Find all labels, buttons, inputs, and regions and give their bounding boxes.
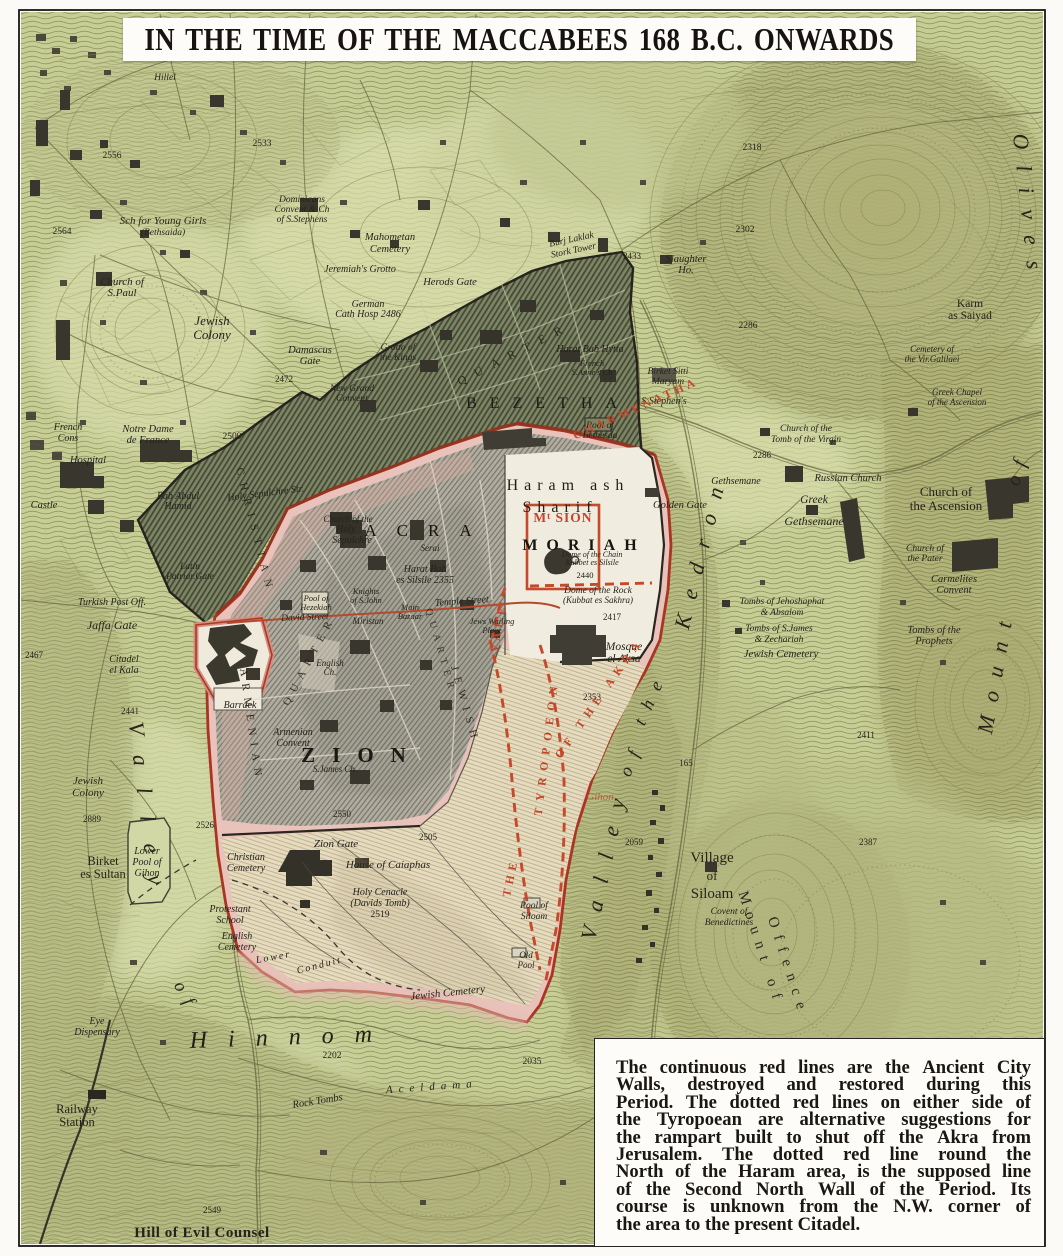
svg-text:BEZETHA: BEZETHA xyxy=(466,395,630,412)
svg-text:165: 165 xyxy=(679,758,693,768)
svg-text:Carmelites: Carmelites xyxy=(931,574,977,585)
svg-text:2286: 2286 xyxy=(739,321,758,331)
svg-text:Sepulchre: Sepulchre xyxy=(332,535,372,546)
svg-text:Citadel: Citadel xyxy=(109,654,139,665)
svg-text:Pool: Pool xyxy=(517,960,535,970)
svg-text:Cemetery of: Cemetery of xyxy=(910,344,955,354)
svg-text:Karm: Karm xyxy=(957,298,983,310)
svg-text:Pool of: Pool of xyxy=(519,900,549,911)
svg-text:S.Paul: S.Paul xyxy=(107,287,136,299)
svg-text:Siloam: Siloam xyxy=(691,886,734,902)
svg-text:Eye: Eye xyxy=(89,1016,106,1027)
svg-text:de France: de France xyxy=(127,435,170,446)
svg-text:Holy Cenacle: Holy Cenacle xyxy=(352,887,408,898)
svg-text:Cath Hosp 2486: Cath Hosp 2486 xyxy=(335,309,401,320)
svg-text:Convent: Convent xyxy=(276,738,310,749)
svg-text:the Pater: the Pater xyxy=(907,554,942,564)
svg-text:Village: Village xyxy=(690,850,734,866)
svg-text:Miristan: Miristan xyxy=(351,616,384,626)
svg-text:David Street: David Street xyxy=(280,612,329,624)
svg-text:(Kubbat es Sakhra): (Kubbat es Sakhra) xyxy=(563,595,633,605)
svg-text:2035: 2035 xyxy=(523,1057,542,1067)
svg-text:Hamid: Hamid xyxy=(163,501,192,512)
svg-text:Dispensary: Dispensary xyxy=(73,1027,120,1038)
svg-text:Damascus: Damascus xyxy=(287,345,332,356)
svg-text:Church of the: Church of the xyxy=(323,514,372,524)
svg-text:of S.John: of S.John xyxy=(350,595,382,605)
svg-text:Latin: Latin xyxy=(179,562,200,572)
svg-text:Barrack: Barrack xyxy=(224,700,257,711)
svg-text:Convent & Ch: Convent & Ch xyxy=(275,205,330,215)
svg-text:2889: 2889 xyxy=(83,814,102,824)
svg-text:Gate: Gate xyxy=(300,356,321,367)
svg-text:Zion Gate: Zion Gate xyxy=(314,838,358,850)
svg-text:the Vir.Galilaei: the Vir.Galilaei xyxy=(905,354,960,364)
svg-text:Jeremiah's Grotto: Jeremiah's Grotto xyxy=(324,264,396,275)
svg-text:Harat Bab Hytta: Harat Bab Hytta xyxy=(555,344,623,355)
svg-text:House of Caiaphas: House of Caiaphas xyxy=(345,859,430,871)
svg-text:Kubbet es Silsile: Kubbet es Silsile xyxy=(564,558,619,567)
svg-text:Protestant: Protestant xyxy=(208,904,251,915)
svg-text:of: of xyxy=(707,868,719,883)
svg-text:2519: 2519 xyxy=(371,910,390,920)
svg-text:School: School xyxy=(216,915,243,926)
svg-text:S.James Ch.: S.James Ch. xyxy=(313,764,357,774)
svg-text:Jewish: Jewish xyxy=(194,313,229,328)
svg-text:Castle: Castle xyxy=(31,500,58,511)
svg-text:Gihon: Gihon xyxy=(586,791,614,803)
svg-text:as Saiyad: as Saiyad xyxy=(948,310,992,322)
svg-text:Gethsemane: Gethsemane xyxy=(784,514,844,528)
svg-text:Tombs of Jehoshaphat: Tombs of Jehoshaphat xyxy=(740,596,825,607)
svg-text:Birket: Birket xyxy=(87,854,119,868)
svg-text:2302: 2302 xyxy=(736,225,755,235)
svg-text:Jewish Cemetery: Jewish Cemetery xyxy=(744,648,819,660)
svg-text:2505: 2505 xyxy=(419,832,438,842)
svg-text:Colony: Colony xyxy=(193,327,231,342)
svg-text:2411: 2411 xyxy=(857,730,875,740)
svg-text:Herods Gate: Herods Gate xyxy=(422,277,477,288)
svg-text:Tomb of the Virgin: Tomb of the Virgin xyxy=(771,434,841,445)
svg-text:Church of: Church of xyxy=(920,484,973,499)
svg-text:2467: 2467 xyxy=(25,650,44,660)
svg-text:Jaffa Gate: Jaffa Gate xyxy=(87,618,138,632)
svg-text:Old: Old xyxy=(519,950,533,960)
svg-text:2564: 2564 xyxy=(53,227,72,237)
svg-text:Notre Dame: Notre Dame xyxy=(121,424,174,435)
svg-text:2202: 2202 xyxy=(323,1051,342,1061)
svg-text:2526: 2526 xyxy=(196,820,215,830)
svg-text:es Sultan: es Sultan xyxy=(80,867,126,881)
svg-text:2556: 2556 xyxy=(103,151,122,161)
svg-text:Armenian: Armenian xyxy=(272,727,312,738)
svg-text:Church of the: Church of the xyxy=(780,423,832,434)
svg-text:2059: 2059 xyxy=(625,837,644,847)
svg-text:Greek Chapel: Greek Chapel xyxy=(932,387,982,397)
svg-text:2550: 2550 xyxy=(333,809,352,819)
svg-text:the Kings: the Kings xyxy=(380,353,416,363)
svg-text:Ho.: Ho. xyxy=(677,265,693,276)
svg-text:& Zechariah: & Zechariah xyxy=(755,635,804,645)
svg-text:el Kala: el Kala xyxy=(109,665,138,676)
svg-text:Sch for Young Girls: Sch for Young Girls xyxy=(120,215,207,227)
svg-text:Slaughter: Slaughter xyxy=(666,254,708,265)
svg-text:2549: 2549 xyxy=(203,1205,222,1215)
svg-text:Hillel: Hillel xyxy=(153,73,176,83)
svg-text:Hospital: Hospital xyxy=(69,455,106,466)
svg-text:ACRA: ACRA xyxy=(364,521,491,540)
svg-text:Turkish Post Off.: Turkish Post Off. xyxy=(78,597,146,608)
svg-text:2533: 2533 xyxy=(253,139,272,149)
svg-text:Bazaar: Bazaar xyxy=(398,611,423,621)
svg-text:Patriar.Gate: Patriar.Gate xyxy=(165,572,214,582)
svg-text:Cons: Cons xyxy=(58,433,79,444)
svg-text:2387: 2387 xyxy=(859,837,878,847)
svg-text:& Absalom: & Absalom xyxy=(761,608,804,618)
svg-text:(Davids Tomb): (Davids Tomb) xyxy=(350,898,410,909)
svg-text:Birket Sitti: Birket Sitti xyxy=(648,367,689,377)
svg-text:Church of: Church of xyxy=(906,543,945,554)
svg-text:Cemetery: Cemetery xyxy=(227,863,266,874)
svg-text:Cemetery: Cemetery xyxy=(218,942,257,953)
svg-text:2417: 2417 xyxy=(603,612,622,622)
svg-text:Prophets: Prophets xyxy=(914,636,953,647)
svg-text:Convent: Convent xyxy=(937,585,973,596)
svg-text:Ch.: Ch. xyxy=(324,667,337,677)
svg-text:Mahometan: Mahometan xyxy=(364,232,415,243)
svg-text:Russian Church: Russian Church xyxy=(814,473,882,484)
svg-text:Serai: Serai xyxy=(421,543,440,553)
svg-text:Hill of Evil Counsel: Hill of Evil Counsel xyxy=(134,1225,269,1241)
svg-text:es Silsile 2355: es Silsile 2355 xyxy=(396,575,454,586)
svg-text:Railway: Railway xyxy=(56,1102,98,1116)
svg-text:Jewish: Jewish xyxy=(73,775,103,787)
svg-text:the Ascension: the Ascension xyxy=(910,498,983,513)
svg-text:Station: Station xyxy=(59,1115,95,1129)
svg-text:(Bethsaida): (Bethsaida) xyxy=(141,227,185,238)
svg-text:English: English xyxy=(221,931,253,942)
svg-text:Siloam: Siloam xyxy=(521,912,548,922)
svg-text:Greek: Greek xyxy=(800,494,829,506)
svg-text:Christian: Christian xyxy=(227,852,265,863)
svg-text:Grotto of: Grotto of xyxy=(381,342,417,353)
svg-text:2433: 2433 xyxy=(623,251,642,261)
svg-text:New Grand: New Grand xyxy=(329,384,374,394)
svg-text:of S.Stephens: of S.Stephens xyxy=(277,214,328,225)
svg-text:Colony: Colony xyxy=(72,787,104,799)
svg-text:Mt SION: Mt SION xyxy=(533,510,592,525)
svg-text:2440: 2440 xyxy=(577,570,594,580)
svg-text:S.Anne's Ch: S.Anne's Ch xyxy=(571,367,612,377)
svg-text:Dominicans: Dominicans xyxy=(278,195,325,205)
svg-text:Cemetery: Cemetery xyxy=(370,244,411,255)
svg-text:of the Ascension: of the Ascension xyxy=(928,397,987,407)
svg-text:2509: 2509 xyxy=(223,432,242,442)
svg-text:French: French xyxy=(53,422,83,433)
svg-text:Holy: Holy xyxy=(335,524,356,535)
svg-text:Convent: Convent xyxy=(336,394,368,404)
svg-text:Tombs of the: Tombs of the xyxy=(907,625,961,636)
svg-text:2472: 2472 xyxy=(275,374,293,384)
svg-text:Harat Bab: Harat Bab xyxy=(403,564,447,575)
svg-text:2286: 2286 xyxy=(753,450,772,460)
svg-text:Haram ash: Haram ash xyxy=(507,477,630,494)
svg-text:2318: 2318 xyxy=(743,143,762,153)
svg-text:Tombs of S.James: Tombs of S.James xyxy=(745,623,813,634)
svg-text:Hezekiah: Hezekiah xyxy=(299,602,332,612)
svg-text:2441: 2441 xyxy=(121,706,139,716)
